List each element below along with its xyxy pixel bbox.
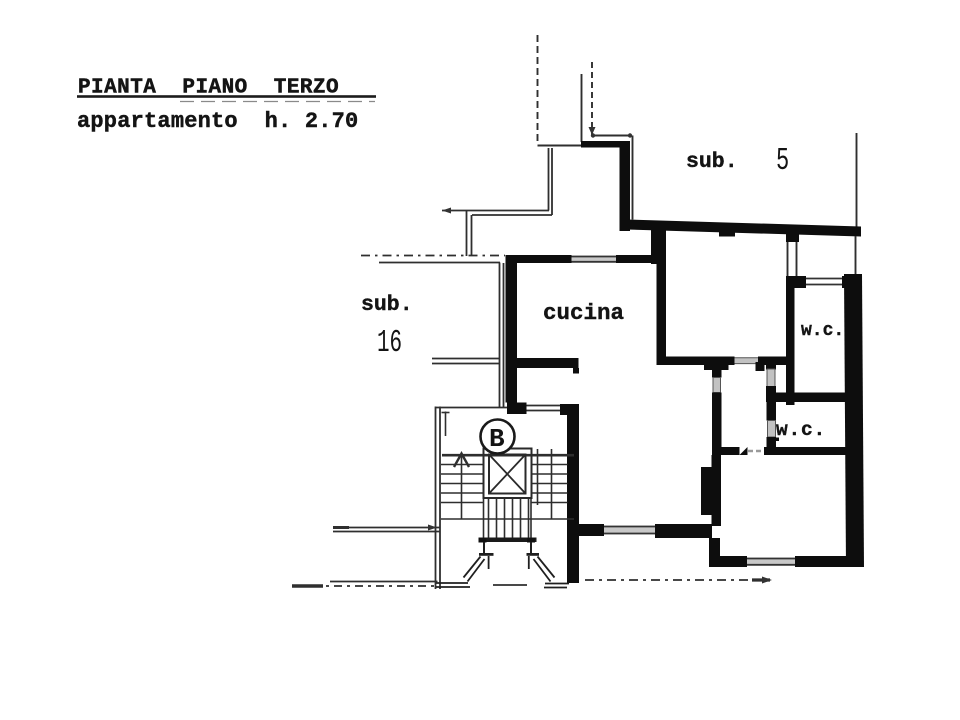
svg-text:w.c.: w.c. (801, 321, 844, 341)
svg-text:appartamento h. 2.70: appartamento h. 2.70 (77, 109, 358, 134)
svg-text:B: B (489, 424, 505, 454)
svg-text:cucina: cucina (543, 300, 624, 326)
svg-text:5: 5 (776, 143, 789, 179)
svg-text:16: 16 (377, 326, 402, 361)
svg-text:sub.: sub. (361, 293, 413, 317)
svg-text:w.c.: w.c. (776, 419, 826, 441)
svg-text:sub.: sub. (686, 150, 738, 174)
